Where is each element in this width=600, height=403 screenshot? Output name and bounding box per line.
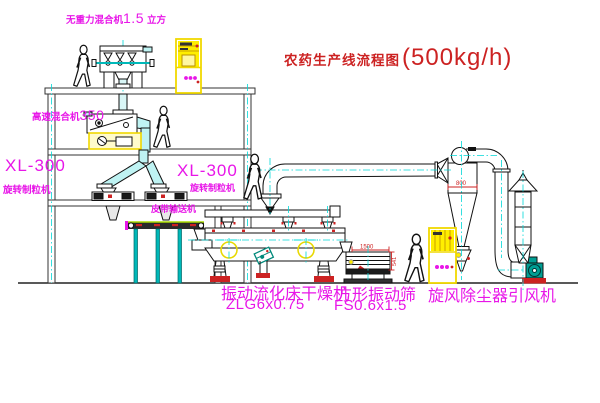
flow-diagram: 1500 541 800: [0, 0, 600, 403]
y-chute: [97, 150, 166, 189]
fluid-bed-dryer: [192, 206, 345, 282]
diagram-title: 农药生产线流程图 (500kg/h): [284, 44, 512, 72]
dryer-top-stubs: [221, 217, 336, 228]
label-dryer-model: ZLG6x0.75: [226, 297, 305, 312]
exhaust-duct: [259, 158, 448, 214]
label-granulator-left-name: 旋转制粒机: [3, 186, 51, 196]
title-chinese: 农药生产线流程图: [284, 49, 400, 69]
label-granulator-right-model: XL-300: [177, 162, 238, 179]
granulator-left-machine: [92, 188, 134, 201]
vibrating-screen: 1500 541: [340, 242, 398, 283]
label-high-speed-mixer: 高速混合机350: [32, 108, 104, 123]
dryer-feet: [210, 261, 334, 282]
label-gravity-free-mixer: 无重力混合机1.5立方: [66, 11, 166, 26]
label-belt-conveyor: 皮带输送机: [151, 205, 196, 214]
control-cabinet-1: [176, 39, 201, 93]
label-fan: 引风机: [508, 289, 556, 305]
person-top-floor: [74, 45, 91, 86]
label-cyclone: 旋风除尘器: [428, 289, 508, 305]
control-cabinet-2: [429, 228, 456, 283]
granulator-right-machine: [145, 188, 187, 201]
title-capacity: (500kg/h): [402, 44, 512, 72]
belt-conveyor: [125, 221, 210, 283]
screen-height-dim: 541: [392, 257, 398, 266]
person-second-floor: [154, 106, 171, 147]
label-screen-model: FS0.6x1.5: [334, 298, 407, 313]
screen-length-dim: 1500: [360, 245, 374, 251]
gravity-free-mixer: [92, 46, 154, 115]
label-granulator-right-name: 旋转制粒机: [190, 184, 235, 193]
label-granulator-left-model: XL-300: [5, 157, 66, 174]
person-ground-floor: [405, 234, 424, 281]
